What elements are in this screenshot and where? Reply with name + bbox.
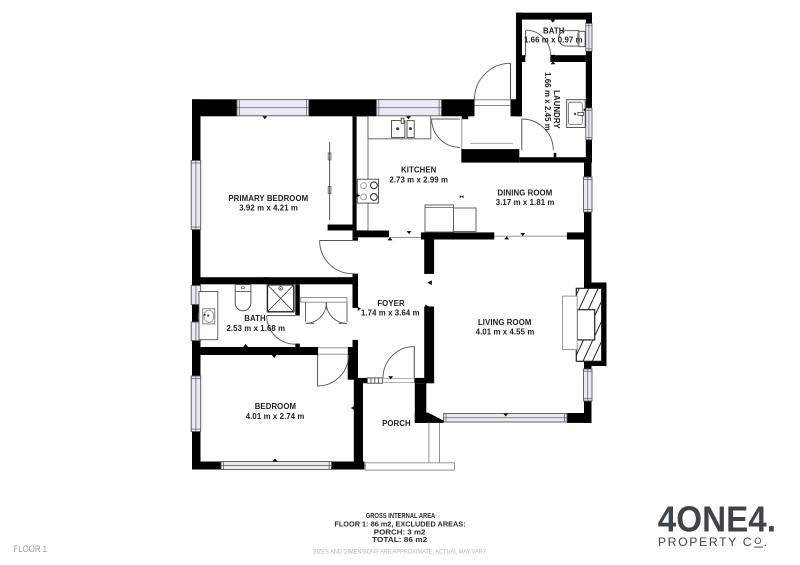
svg-text:1.66 m x 2.45 m: 1.66 m x 2.45 m xyxy=(543,72,552,131)
svg-text:4.01 m x 4.55 m: 4.01 m x 4.55 m xyxy=(476,327,535,336)
svg-text:BATH: BATH xyxy=(244,314,266,323)
svg-text:FOYER: FOYER xyxy=(377,299,405,308)
svg-text:PORCH: PORCH xyxy=(382,419,411,428)
svg-text:PROPERTY C: PROPERTY C xyxy=(658,535,752,549)
svg-text:KITCHEN: KITCHEN xyxy=(401,166,437,175)
svg-text:DINING ROOM: DINING ROOM xyxy=(497,189,552,198)
svg-text:O: O xyxy=(754,536,761,546)
svg-text:TOTAL: 86 m2: TOTAL: 86 m2 xyxy=(372,535,427,544)
svg-text:BATH: BATH xyxy=(543,27,565,36)
svg-text:.: . xyxy=(764,535,767,549)
svg-text:2.73 m x 2.99 m: 2.73 m x 2.99 m xyxy=(389,175,448,184)
svg-text:4ONE4.: 4ONE4. xyxy=(658,498,776,539)
svg-text:FLOOR 1: FLOOR 1 xyxy=(14,544,48,554)
svg-text:PRIMARY BEDROOM: PRIMARY BEDROOM xyxy=(228,194,308,203)
svg-text:SIZES AND DIMENSIONS ARE APPRO: SIZES AND DIMENSIONS ARE APPROXIMATE, AC… xyxy=(313,549,488,556)
svg-text:3.17 m x 1.81 m: 3.17 m x 1.81 m xyxy=(496,198,555,207)
svg-text:BEDROOM: BEDROOM xyxy=(255,402,296,411)
svg-text:1.74 m x 3.64 m: 1.74 m x 3.64 m xyxy=(361,308,420,317)
svg-text:4.01 m x 2.74 m: 4.01 m x 2.74 m xyxy=(246,412,305,421)
svg-text:1.66 m x 0.97 m: 1.66 m x 0.97 m xyxy=(524,35,583,44)
svg-text:LIVING ROOM: LIVING ROOM xyxy=(478,318,532,327)
svg-text:3.92 m x 4.21 m: 3.92 m x 4.21 m xyxy=(239,203,298,212)
svg-text:2.53 m x 1.68 m: 2.53 m x 1.68 m xyxy=(226,324,285,333)
